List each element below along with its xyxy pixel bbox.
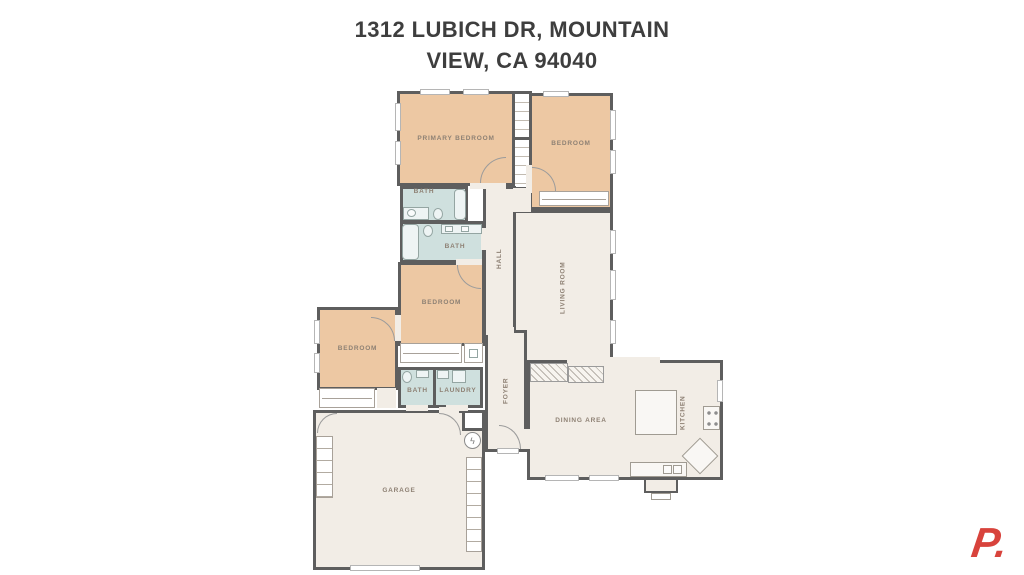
garage-utility-closet [462, 410, 485, 431]
window [610, 230, 616, 254]
window [463, 89, 489, 95]
address-line-2: VIEW, CA 94040 [0, 45, 1024, 76]
closet-rod [403, 353, 459, 354]
window [610, 110, 616, 140]
page: { "title": { "line1": "1312 LUBICH DR, M… [0, 0, 1024, 575]
address-line-1: 1312 LUBICH DR, MOUNTAIN [0, 14, 1024, 45]
door-opening [523, 429, 531, 449]
door-opening [486, 327, 514, 335]
door-opening [406, 405, 428, 411]
door-opening [395, 315, 401, 341]
window [589, 475, 619, 481]
fireplace-hearth [568, 366, 604, 383]
window [717, 380, 723, 402]
window [610, 150, 616, 174]
window [420, 89, 450, 95]
stove-icon [703, 406, 720, 430]
closet-rod [542, 199, 606, 200]
property-address-title: 1312 LUBICH DR, MOUNTAIN VIEW, CA 94040 [0, 14, 1024, 76]
closet-rod [322, 398, 372, 399]
window [314, 320, 320, 344]
hall-passage [377, 388, 396, 408]
washer-icon [452, 370, 466, 383]
room-living [513, 210, 613, 365]
brand-logo: P. [968, 519, 1011, 567]
brand-logo-text: P. [968, 519, 1011, 566]
sink-icon [445, 226, 453, 232]
sink-icon [461, 226, 469, 232]
toilet-icon [423, 225, 433, 237]
window [545, 475, 579, 481]
garage-shelving [466, 457, 482, 552]
floor-plan: ϟ PRIMARY BEDROOM BEDROOM BATH BATH HALL… [313, 91, 725, 570]
sink-icon [416, 370, 429, 378]
closet-divider [515, 137, 529, 140]
cabinet-basin [469, 349, 478, 358]
room-hall [483, 186, 516, 332]
bathtub-icon [402, 224, 419, 260]
fireplace-hearth [530, 363, 568, 382]
toilet-icon [402, 371, 412, 383]
closet-bedroom-top-right [539, 191, 609, 206]
linen-cabinet [464, 343, 483, 363]
kitchen-island [635, 390, 677, 435]
closet-bedroom-middle [400, 343, 462, 363]
window [395, 103, 401, 131]
closet-bedroom-left [319, 388, 375, 408]
door-opening [470, 183, 506, 189]
water-heater-icon: ϟ [464, 432, 481, 449]
door-opening [439, 407, 459, 413]
sink-icon [407, 209, 416, 217]
window [395, 141, 401, 165]
garage-shelving [316, 436, 333, 498]
sink-icon [663, 465, 672, 474]
shower-icon [454, 189, 466, 220]
window [610, 320, 616, 344]
open-plan-junction [567, 357, 660, 366]
water-heater-glyph: ϟ [470, 436, 475, 446]
laundry-sink-icon [437, 370, 449, 379]
sink-icon [673, 465, 682, 474]
window [543, 91, 569, 97]
window [314, 353, 320, 373]
porch-step [651, 493, 671, 500]
window [610, 270, 616, 300]
back-porch-step [644, 478, 678, 493]
room-bedroom-left [317, 307, 398, 390]
window [350, 565, 420, 571]
toilet-icon [433, 208, 443, 220]
